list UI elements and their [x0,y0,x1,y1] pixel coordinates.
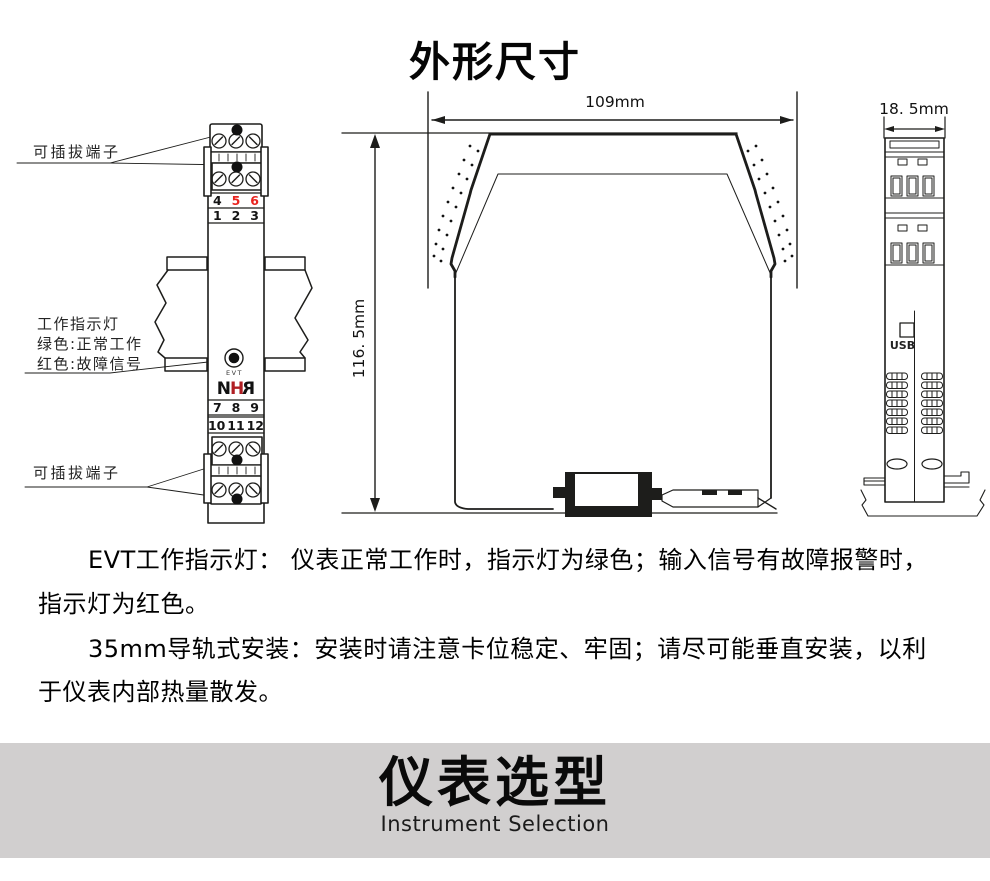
indicator-label-block: 工作指示灯 绿色:正常工作 红色:故障信号 [37,314,143,374]
terminal-row-101112: 10 11 12 [207,419,265,432]
logo-letter-n: N [217,379,230,399]
dimension-height-label: 116. 5mm [350,276,367,401]
nhr-brand-logo: NHR [207,379,265,399]
dimension-width-label: 109mm [540,93,690,111]
pluggable-terminal-label-top: 可插拔端子 [33,141,121,162]
terminal-number: 11 [227,418,244,433]
dimension-drawing [0,0,990,535]
terminal-number: 8 [232,400,241,415]
indicator-label-line3: 红色:故障信号 [37,354,143,374]
terminal-number: 12 [247,418,264,433]
front-terminal-block-top [204,124,268,196]
banner-subtitle: Instrument Selection [0,812,990,836]
indicator-light [225,349,243,367]
terminal-number: 3 [250,208,259,223]
indicator-label-line1: 工作指示灯 [37,314,143,334]
terminal-number: 9 [250,400,259,415]
terminal-number: 2 [232,208,241,223]
side-view-outline [342,92,797,513]
vent-dots [433,145,794,263]
profile-view [861,117,985,516]
manual-page: 外形尺寸 [0,0,990,881]
indicator-label-line2: 绿色:正常工作 [37,334,143,354]
terminal-number: 6 [250,193,259,208]
terminal-number: 1 [213,208,222,223]
note-mount-line2: 于仪表内部热量散发。 [38,672,283,707]
terminal-number: 4 [213,193,222,208]
terminal-number: 10 [208,418,225,433]
din-rail-left-piece [155,257,207,371]
section-banner: 仪表选型 Instrument Selection [0,743,990,858]
note-evt-line1: EVT工作指示灯： 仪表正常工作时，指示灯为绿色；输入信号有故障报警时， [88,540,928,575]
din-rail-right-piece [265,257,312,371]
rail-clip [553,472,776,517]
terminal-row-123: 1 2 3 [208,209,264,222]
dimension-depth-label: 18. 5mm [864,100,964,118]
usb-port-label: USB [886,339,919,352]
terminal-row-789: 7 8 9 [208,401,264,414]
pluggable-terminal-label-bottom: 可插拔端子 [33,462,121,483]
terminal-number: 5 [232,193,241,208]
front-terminal-block-bottom [204,437,268,505]
logo-letter-h: H [230,379,243,399]
terminal-number: 7 [213,400,222,415]
note-evt-line2: 指示灯为红色。 [38,584,210,619]
evt-indicator-tag: EVT [207,369,262,377]
note-mount-line1: 35mm导轨式安装：安装时请注意卡位稳定、牢固；请尽可能垂直安装，以利 [88,629,927,664]
banner-title: 仪表选型 [0,754,990,812]
terminal-row-456: 4 5 6 [208,194,264,207]
logo-letter-r: R [243,379,255,399]
